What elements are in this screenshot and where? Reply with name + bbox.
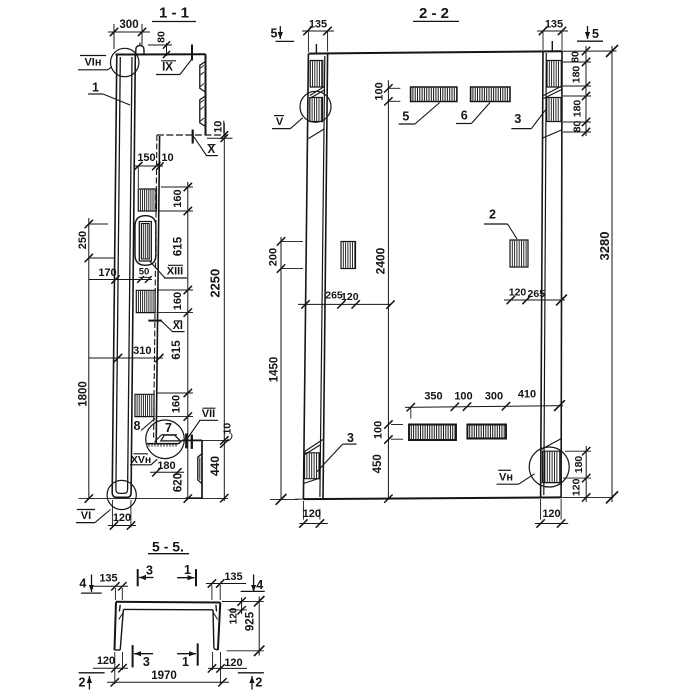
svg-text:180: 180 [573, 456, 585, 474]
svg-text:V: V [276, 116, 284, 128]
svg-text:XI: XI [173, 320, 183, 332]
svg-text:200: 200 [268, 248, 280, 266]
svg-text:120: 120 [303, 508, 321, 520]
svg-text:2: 2 [255, 676, 262, 690]
svg-text:310: 310 [133, 345, 151, 357]
svg-text:5 - 5.: 5 - 5. [152, 539, 184, 555]
svg-text:180: 180 [572, 100, 584, 118]
svg-text:300: 300 [485, 391, 503, 403]
svg-text:4: 4 [79, 577, 86, 591]
svg-text:1: 1 [182, 655, 189, 669]
svg-text:1 - 1: 1 - 1 [159, 5, 189, 22]
svg-text:8: 8 [134, 419, 141, 433]
svg-text:80: 80 [572, 121, 584, 133]
svg-text:5: 5 [271, 27, 278, 41]
svg-text:4: 4 [256, 578, 263, 592]
svg-text:120: 120 [97, 655, 115, 667]
svg-text:180: 180 [571, 66, 583, 84]
svg-text:3: 3 [146, 564, 153, 578]
svg-text:3: 3 [143, 655, 150, 669]
svg-text:135: 135 [309, 19, 327, 31]
svg-text:1: 1 [92, 81, 99, 95]
svg-text:170: 170 [98, 267, 116, 279]
svg-text:VI: VI [81, 510, 91, 522]
svg-text:135: 135 [99, 573, 117, 585]
svg-text:1: 1 [184, 563, 191, 577]
svg-text:410: 410 [518, 389, 536, 401]
svg-text:5: 5 [592, 27, 599, 41]
svg-text:1970: 1970 [151, 670, 177, 682]
svg-text:VIн: VIн [84, 57, 101, 69]
svg-text:5: 5 [402, 110, 409, 124]
svg-text:450: 450 [372, 454, 384, 473]
svg-text:160: 160 [172, 292, 184, 310]
svg-text:120: 120 [224, 657, 242, 669]
svg-text:XVн: XVн [131, 454, 151, 466]
svg-text:2 - 2: 2 - 2 [419, 5, 449, 22]
svg-text:265: 265 [528, 288, 546, 300]
svg-text:2400: 2400 [374, 247, 388, 274]
svg-text:100: 100 [454, 391, 472, 403]
svg-text:IX: IX [162, 62, 173, 74]
svg-text:120: 120 [509, 287, 527, 299]
svg-text:120: 120 [113, 512, 131, 524]
svg-text:X: X [207, 144, 215, 156]
svg-text:3: 3 [514, 112, 521, 126]
svg-text:120: 120 [542, 508, 560, 520]
svg-text:80: 80 [156, 31, 168, 43]
svg-text:1800: 1800 [78, 381, 90, 407]
svg-text:3280: 3280 [597, 232, 612, 261]
svg-text:7: 7 [165, 421, 172, 435]
svg-text:100: 100 [373, 82, 385, 100]
svg-text:10: 10 [212, 121, 224, 133]
svg-text:135: 135 [224, 571, 242, 583]
svg-text:VII: VII [202, 408, 215, 420]
svg-text:6: 6 [461, 109, 468, 123]
svg-text:160: 160 [171, 395, 183, 413]
svg-text:180: 180 [157, 460, 175, 472]
svg-text:2250: 2250 [208, 269, 223, 298]
svg-text:2: 2 [489, 208, 496, 222]
svg-text:XIII: XIII [167, 266, 184, 278]
svg-text:Vн: Vн [499, 472, 513, 484]
svg-text:10: 10 [222, 423, 234, 435]
svg-text:160: 160 [172, 189, 184, 207]
svg-text:3: 3 [347, 431, 354, 445]
svg-text:300: 300 [119, 19, 138, 31]
svg-text:350: 350 [424, 391, 442, 403]
svg-text:100: 100 [373, 421, 385, 439]
svg-text:2: 2 [79, 676, 86, 690]
svg-text:1450: 1450 [269, 357, 281, 383]
svg-text:615: 615 [173, 236, 185, 256]
svg-text:120: 120 [571, 478, 583, 496]
svg-text:615: 615 [171, 340, 183, 360]
svg-text:50: 50 [139, 267, 150, 278]
svg-text:440: 440 [208, 456, 222, 476]
svg-text:150: 150 [137, 152, 155, 164]
svg-text:80: 80 [570, 51, 582, 63]
svg-text:925: 925 [245, 611, 257, 631]
svg-text:135: 135 [545, 19, 563, 31]
svg-text:250: 250 [77, 231, 89, 249]
